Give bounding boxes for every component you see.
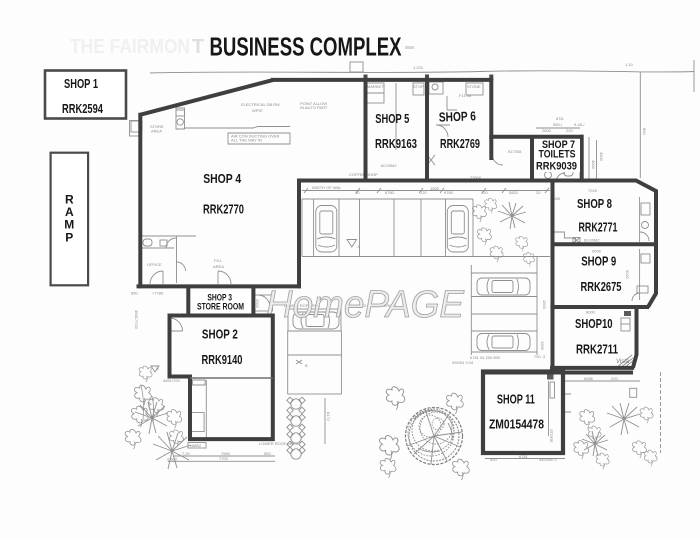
svg-text:RRK2594: RRK2594 [62,101,104,116]
svg-text:RRK2769: RRK2769 [440,136,480,151]
svg-text:220: 220 [566,128,573,133]
svg-text:950-/: 950-/ [553,122,563,127]
svg-text:P: P [65,230,73,244]
svg-text:1500: 1500 [430,186,440,191]
svg-text:SHOP 6: SHOP 6 [439,108,477,124]
svg-text:OFFICE: OFFICE [147,262,162,267]
svg-text:ALL THE WAY IN: ALL THE WAY IN [231,138,262,143]
svg-text:6780: 6780 [385,190,395,195]
svg-text:BUSINESS COMPLEX: BUSINESS COMPLEX [210,34,402,62]
svg-text:T: T [192,36,204,58]
svg-text:1,220: 1,220 [413,65,424,70]
svg-text:STORE: STORE [549,429,554,443]
svg-text:6781 04 200 800: 6781 04 200 800 [470,355,501,360]
svg-text:1,10: 1,10 [625,62,634,67]
svg-text:20: 20 [355,190,360,195]
svg-text:A: A [358,244,361,249]
svg-text:RRK2711: RRK2711 [576,342,618,357]
svg-text:09/004 3 04: 09/004 3 04 [452,360,474,365]
svg-text:RRK9163: RRK9163 [375,136,417,151]
svg-text:RRK2770: RRK2770 [203,202,244,217]
svg-text:9-45-/: 9-45-/ [574,122,585,127]
svg-text:7016: 7016 [588,188,598,193]
svg-text:LOWER ROOF AREA: LOWER ROOF AREA [259,441,298,446]
svg-text:RRK9140: RRK9140 [202,352,243,367]
svg-text:7700: 7700 [219,456,229,461]
svg-text:SHOP 5: SHOP 5 [375,111,409,126]
svg-text:2600: 2600 [542,128,552,133]
svg-text:WP57: WP57 [252,108,264,113]
svg-text:220: 220 [481,190,488,195]
svg-text:TOILETS: TOILETS [539,149,576,161]
svg-text:IN AUTO PART: IN AUTO PART [300,105,328,110]
svg-text:7,20: 7,20 [182,451,191,456]
svg-text:6086: 6086 [584,376,594,381]
svg-text:4500: 4500 [599,152,604,162]
svg-text:700 .3: 700 .3 [534,354,546,359]
svg-text:F11.08: F11.08 [459,93,472,98]
svg-text:60.00M2: 60.00M2 [381,163,397,168]
svg-text:4851/700: 4851/700 [163,378,180,383]
svg-text:2,600: 2,600 [167,457,178,462]
svg-text:SHOP10: SHOP10 [575,316,613,331]
svg-text:AREA: AREA [213,264,224,269]
svg-text:5020: 5020 [625,270,630,280]
svg-text:850: 850 [131,291,138,296]
svg-text:8000: 8000 [586,310,596,315]
svg-text:B: B [156,366,159,371]
svg-text:WIDTH OF WAL: WIDTH OF WAL [312,185,342,190]
svg-text:HomePAGE: HomePAGE [266,284,465,326]
svg-text:SHOP 8: SHOP 8 [577,196,612,211]
svg-text:FILL: FILL [214,258,223,263]
svg-text:ZM0154478: ZM0154478 [489,417,544,432]
svg-text:SHOP 1: SHOP 1 [64,76,98,91]
svg-text:917308: 917308 [508,149,522,154]
svg-text:MARKET: MARKET [367,84,384,89]
svg-text:ELECTRICAL DB RM: ELECTRICAL DB RM [241,102,280,107]
svg-text:1500: 1500 [542,300,547,310]
svg-text:STORE ROOM: STORE ROOM [197,302,244,313]
svg-text:SHOP 4: SHOP 4 [203,171,242,186]
svg-text:550: 550 [264,451,271,456]
svg-text:850: 850 [642,128,647,135]
svg-text:5820: 5820 [509,190,519,195]
svg-text:6780: 6780 [444,190,454,195]
svg-text:220: 220 [420,190,427,195]
svg-text:STONE: STONE [467,84,481,89]
svg-text:RRK9039: RRK9039 [536,161,577,173]
svg-text:THE FAIRMON: THE FAIRMON [70,36,190,58]
svg-text:878-: 878- [556,116,565,121]
svg-text:STOP: STOP [413,84,424,89]
svg-text:SHOP 2: SHOP 2 [202,327,238,342]
svg-text:AREA: AREA [151,129,162,134]
svg-text:60.00M2: 60.00M2 [584,238,600,243]
svg-text:RRK2771: RRK2771 [579,220,618,235]
svg-text:20: 20 [536,190,541,195]
svg-text:SHOP 11: SHOP 11 [497,392,535,407]
svg-text:RRK2675: RRK2675 [581,279,622,294]
svg-text:Vista: Vista [616,359,630,365]
svg-text:220: 220 [611,376,618,381]
svg-text:2003: 2003 [255,299,260,309]
svg-text:NMB2: NMB2 [190,443,202,448]
svg-text:400: 400 [490,457,497,462]
svg-text:440/300 2: 440/300 2 [539,457,558,462]
svg-text:+7780.: +7780. [152,291,164,296]
svg-text:1500: 1500 [540,341,545,351]
svg-text:B: B [305,363,308,368]
svg-text:46517/700: 46517/700 [134,310,139,330]
svg-text:4000: 4000 [591,160,596,170]
svg-text:SHOP 9: SHOP 9 [581,254,616,269]
svg-text:8172: 8172 [326,412,331,422]
